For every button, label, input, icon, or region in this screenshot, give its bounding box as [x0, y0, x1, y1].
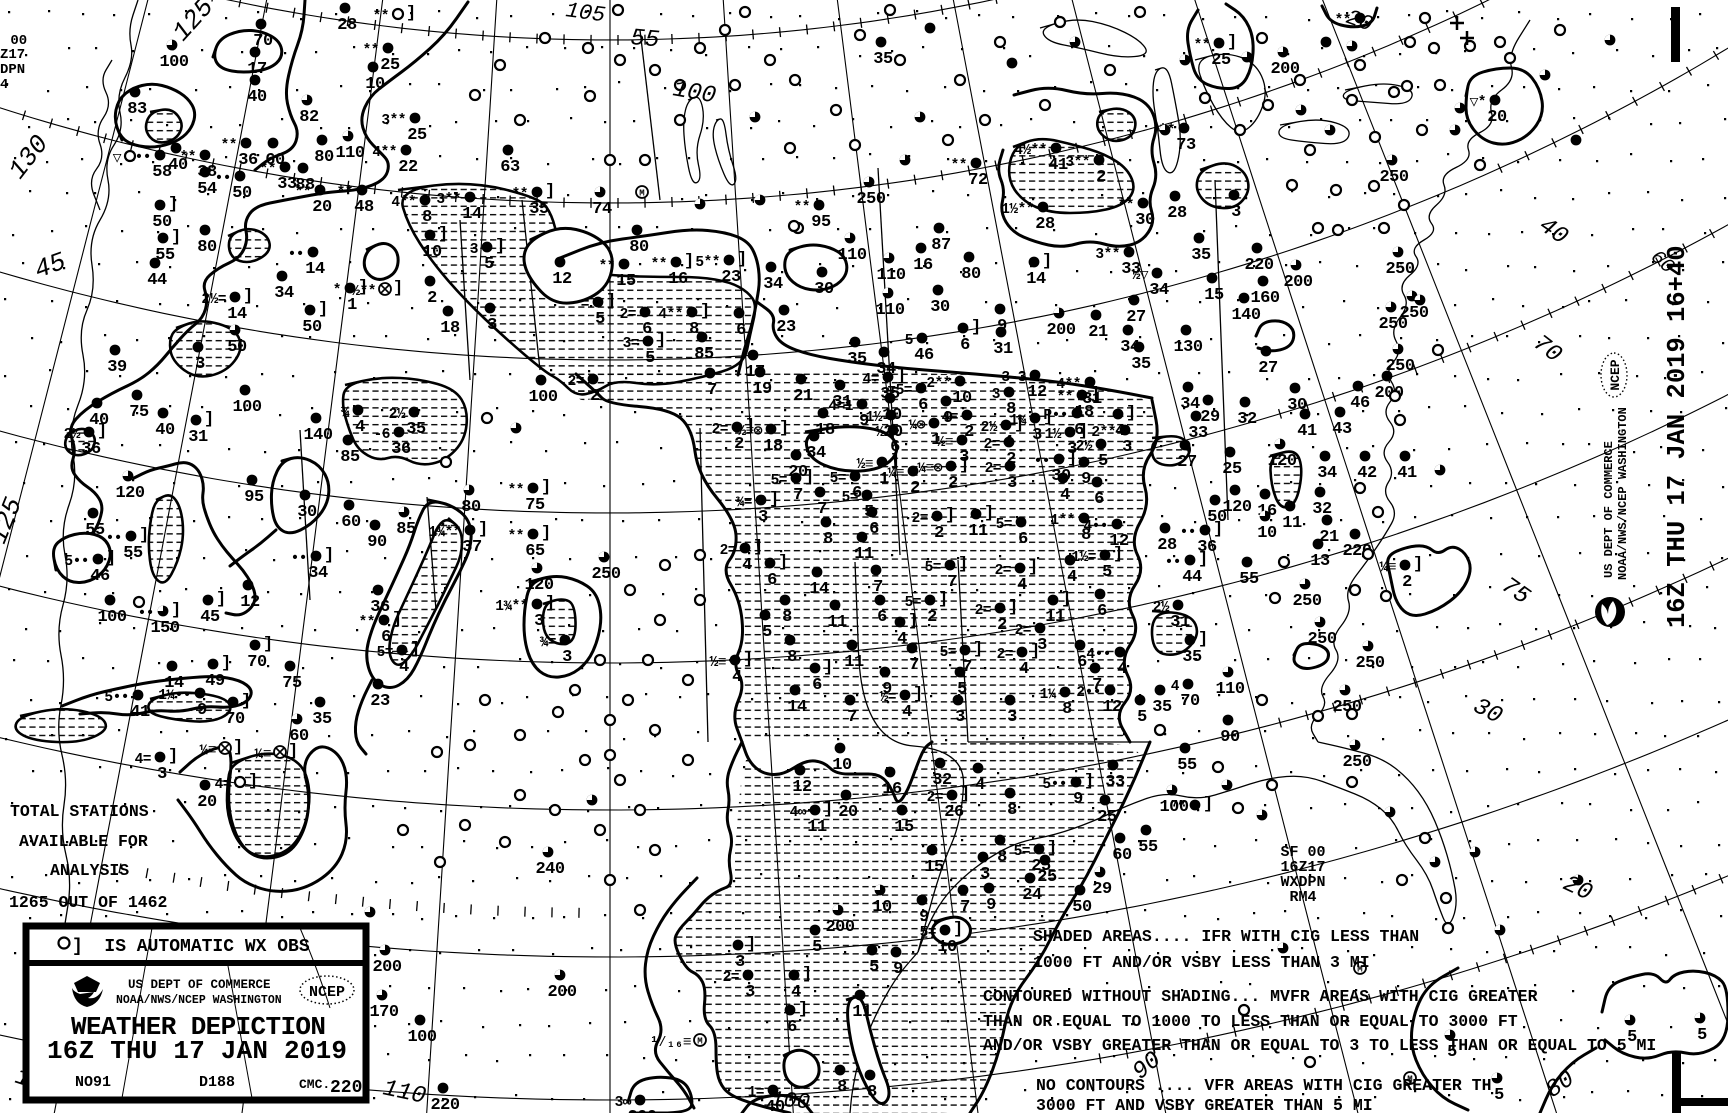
- svg-text:2: 2: [948, 474, 958, 493]
- svg-text:M: M: [639, 189, 644, 199]
- svg-text:1¾: 1¾: [1010, 413, 1027, 429]
- svg-text:6: 6: [1094, 490, 1104, 509]
- svg-text:35: 35: [1182, 648, 1202, 667]
- svg-text:]: ]: [393, 279, 403, 298]
- svg-text:55: 55: [123, 544, 143, 563]
- svg-text:6: 6: [877, 608, 887, 627]
- svg-text:]: ]: [743, 650, 753, 669]
- svg-text:]: ]: [1113, 545, 1123, 564]
- svg-text:3-3: 3-3: [1001, 370, 1026, 386]
- svg-text:1000 FT AND/OR VSBY LESS THAN: 1000 FT AND/OR VSBY LESS THAN 3 MI: [1033, 953, 1370, 972]
- svg-text:3∞: 3∞: [615, 1095, 632, 1111]
- svg-text:]: ]: [746, 935, 756, 954]
- svg-text:]: ]: [945, 506, 955, 525]
- svg-text:AVAILABLE FOR: AVAILABLE FOR: [19, 832, 148, 851]
- svg-text:5: 5: [1098, 452, 1108, 471]
- svg-text:41: 41: [130, 703, 150, 722]
- svg-text:D188: D188: [199, 1074, 235, 1091]
- svg-text:2=: 2=: [975, 603, 991, 619]
- svg-text:**: **: [508, 483, 524, 499]
- svg-text:=: =: [581, 297, 589, 313]
- svg-text:170: 170: [369, 1003, 398, 1022]
- svg-text:**: **: [295, 185, 311, 201]
- svg-text:]: ]: [798, 1000, 808, 1019]
- svg-text:]: ]: [804, 468, 814, 487]
- svg-text:5: 5: [595, 310, 605, 329]
- svg-text:½≡: ½≡: [857, 457, 873, 473]
- svg-text:]: ]: [1028, 558, 1038, 577]
- svg-text:9: 9: [197, 701, 207, 720]
- svg-text:P••: P••: [1043, 408, 1068, 424]
- svg-text:250: 250: [1385, 260, 1414, 279]
- svg-text:110: 110: [335, 144, 364, 163]
- svg-text:2½: 2½: [981, 420, 998, 436]
- svg-text:3: 3: [980, 865, 990, 884]
- svg-text:¾=: ¾=: [540, 635, 556, 651]
- svg-text:5=: 5=: [925, 560, 941, 576]
- svg-text:THAN OR EQUAL TO 1000 TO LESS: THAN OR EQUAL TO 1000 TO LESS THAN OR EQ…: [983, 1012, 1518, 1031]
- svg-text:20: 20: [312, 198, 332, 217]
- svg-text:3: 3: [1122, 438, 1132, 457]
- svg-text:5=: 5=: [1014, 844, 1030, 860]
- svg-text:]: ]: [1008, 598, 1018, 617]
- svg-text:21: 21: [793, 387, 813, 406]
- svg-text:34: 34: [308, 564, 328, 583]
- svg-text:80: 80: [314, 148, 334, 167]
- svg-text:1¼: 1¼: [1040, 687, 1057, 703]
- svg-text:¼≡: ¼≡: [1380, 560, 1396, 576]
- svg-text:32: 32: [932, 771, 952, 790]
- svg-text:30: 30: [297, 503, 317, 522]
- svg-text:ANALYSIS: ANALYSIS: [50, 861, 129, 880]
- svg-text:]: ]: [960, 785, 970, 804]
- svg-text:43: 43: [1332, 420, 1352, 439]
- svg-text:41: 41: [1397, 464, 1417, 483]
- svg-text:4=: 4=: [135, 752, 151, 768]
- svg-text:½≡: ½≡: [937, 435, 953, 451]
- svg-text:70: 70: [1180, 692, 1200, 711]
- svg-text:9: 9: [1081, 470, 1091, 489]
- svg-text:55: 55: [629, 25, 660, 54]
- svg-text:6: 6: [767, 571, 777, 590]
- svg-text:2=: 2=: [568, 374, 584, 390]
- svg-text:]: ]: [684, 252, 694, 271]
- svg-text:35: 35: [406, 420, 426, 439]
- svg-text:US DEPT OF COMMERCE: US DEPT OF COMMERCE: [1602, 441, 1616, 578]
- svg-text:3: 3: [1231, 203, 1241, 222]
- svg-text:2=: 2=: [984, 437, 1000, 453]
- svg-text:]: ]: [1413, 555, 1423, 574]
- svg-text:]: ]: [106, 549, 116, 568]
- svg-text:40: 40: [247, 88, 267, 107]
- svg-text:4**: 4**: [391, 195, 416, 211]
- svg-text:75: 75: [129, 403, 149, 422]
- svg-text:150: 150: [150, 619, 179, 638]
- svg-text:25: 25: [1222, 460, 1242, 479]
- svg-text:250: 250: [1378, 315, 1407, 334]
- svg-text:6: 6: [787, 1018, 797, 1037]
- svg-text:4••: 4••: [1083, 519, 1108, 535]
- svg-text:10: 10: [832, 756, 852, 775]
- svg-text:NO CONTOURS .... VFR AREAS WIT: NO CONTOURS .... VFR AREAS WITH CIG GREA…: [1036, 1076, 1491, 1095]
- svg-text:¼≡: ¼≡: [255, 747, 271, 763]
- svg-text:SHADED AREAS.... IFR WITH CIG: SHADED AREAS.... IFR WITH CIG LESS THAN: [1033, 927, 1419, 946]
- svg-text:28: 28: [337, 16, 357, 35]
- svg-text:11: 11: [827, 613, 847, 632]
- svg-text:60: 60: [341, 513, 361, 532]
- svg-text:250: 250: [591, 565, 620, 584]
- svg-text:]: ]: [890, 452, 900, 471]
- svg-text:10: 10: [937, 938, 957, 957]
- svg-text:28: 28: [1167, 204, 1187, 223]
- svg-text:5: 5: [905, 333, 913, 349]
- svg-text:4: 4: [1060, 486, 1070, 505]
- svg-text:4: 4: [732, 668, 742, 687]
- svg-text:85: 85: [396, 520, 416, 539]
- svg-text:40: 40: [155, 421, 175, 440]
- svg-text:1265 OUT OF 1462: 1265 OUT OF 1462: [9, 893, 167, 912]
- svg-text:]: ]: [908, 612, 918, 631]
- svg-text:9: 9: [882, 680, 892, 699]
- svg-text:]: ]: [221, 654, 231, 673]
- svg-text:80: 80: [961, 265, 981, 284]
- svg-text:29: 29: [1092, 880, 1112, 899]
- svg-text:200: 200: [825, 918, 854, 937]
- svg-text:]: ]: [541, 478, 551, 497]
- svg-text:3: 3: [992, 387, 1000, 403]
- svg-text:35: 35: [529, 200, 549, 219]
- svg-text:12: 12: [1102, 698, 1122, 717]
- svg-text:**: **: [363, 43, 379, 59]
- svg-text:4=1: 4=1: [828, 399, 853, 415]
- svg-text:]: ]: [318, 300, 328, 319]
- svg-text:20: 20: [1487, 108, 1507, 127]
- svg-text:]: ]: [1213, 520, 1223, 539]
- svg-text:**: **: [373, 9, 389, 25]
- svg-text:]: ]: [1198, 630, 1208, 649]
- svg-text:9: 9: [986, 896, 996, 915]
- svg-text:]: ]: [1042, 252, 1052, 271]
- svg-text:••: ••: [1180, 525, 1196, 541]
- svg-text:11: 11: [852, 1003, 872, 1022]
- svg-text:23: 23: [370, 692, 390, 711]
- svg-text:70: 70: [247, 653, 267, 672]
- svg-text:2½: 2½: [1153, 600, 1170, 616]
- svg-text:23: 23: [721, 268, 741, 287]
- svg-text:39: 39: [107, 358, 127, 377]
- svg-text:3: 3: [487, 316, 497, 335]
- svg-text:130: 130: [1173, 338, 1202, 357]
- svg-text:32: 32: [1237, 410, 1257, 429]
- svg-text:▽*: ▽*: [1470, 95, 1486, 111]
- svg-text:••: ••: [1034, 454, 1050, 470]
- svg-text:]: ]: [139, 526, 149, 545]
- svg-text:5=: 5=: [996, 517, 1012, 533]
- svg-text:¼⊗: ¼⊗: [909, 418, 926, 434]
- svg-text:CONTOURED WITHOUT SHADING... M: CONTOURED WITHOUT SHADING... MVFR AREAS …: [983, 987, 1538, 1006]
- svg-text:22: 22: [398, 158, 418, 177]
- svg-text:]: ]: [1090, 385, 1100, 404]
- svg-text:]: ]: [958, 555, 968, 574]
- svg-text:11: 11: [1045, 608, 1065, 627]
- svg-text:34: 34: [1149, 281, 1169, 300]
- svg-text:30: 30: [1135, 211, 1155, 230]
- svg-text:200: 200: [547, 983, 576, 1002]
- svg-text:33: 33: [1105, 773, 1125, 792]
- svg-text:100: 100: [407, 1028, 436, 1047]
- svg-text:7: 7: [873, 578, 883, 597]
- svg-text:]: ]: [802, 965, 812, 984]
- svg-text:1¾**: 1¾**: [428, 525, 461, 541]
- svg-text:NO91: NO91: [75, 1074, 111, 1091]
- svg-text:2=: 2=: [620, 307, 636, 323]
- svg-text:2: 2: [910, 479, 920, 498]
- svg-text:15: 15: [894, 818, 914, 837]
- svg-text:27: 27: [1177, 453, 1197, 472]
- svg-text:50: 50: [232, 184, 252, 203]
- svg-text:60: 60: [1112, 846, 1132, 865]
- svg-text:3: 3: [1007, 708, 1017, 727]
- svg-text:••: ••: [1165, 555, 1181, 571]
- svg-text:8: 8: [837, 1078, 847, 1097]
- svg-text:100: 100: [232, 398, 261, 417]
- svg-text:2: 2: [590, 387, 600, 406]
- svg-text:**: **: [1118, 198, 1134, 214]
- svg-text:45: 45: [200, 608, 220, 627]
- svg-text:36: 36: [81, 440, 101, 459]
- svg-text:]: ]: [406, 4, 416, 23]
- svg-text:37: 37: [462, 538, 482, 557]
- svg-text:]: ]: [606, 292, 616, 311]
- svg-text:NOAA: NOAA: [79, 985, 95, 992]
- svg-text:14: 14: [1026, 270, 1046, 289]
- svg-text:4∞: 4∞: [790, 805, 807, 821]
- svg-text:55: 55: [1177, 756, 1197, 775]
- svg-text:6: 6: [1018, 530, 1028, 549]
- svg-text:75: 75: [525, 496, 545, 515]
- svg-text:5**: 5**: [695, 255, 720, 271]
- svg-text:]: ]: [1198, 550, 1208, 569]
- svg-text:¹⁄₁₆≡: ¹⁄₁₆≡: [650, 1035, 691, 1051]
- svg-text:240: 240: [535, 860, 564, 879]
- svg-text:5: 5: [645, 349, 655, 368]
- svg-text:]: ]: [959, 456, 969, 475]
- svg-text:]: ]: [913, 685, 923, 704]
- svg-text:5••: 5••: [104, 690, 129, 706]
- svg-text:DPN: DPN: [0, 62, 25, 78]
- svg-text:]: ]: [769, 490, 779, 509]
- svg-text:]: ]: [263, 635, 273, 654]
- svg-text:27: 27: [1258, 359, 1278, 378]
- svg-text:5=: 5=: [842, 490, 858, 506]
- svg-text:16Z THU 17 JAN 2019 16+40: 16Z THU 17 JAN 2019 16+40: [1663, 245, 1692, 628]
- svg-text:16: 16: [882, 780, 902, 799]
- svg-text:½▽: ½▽: [1132, 268, 1149, 284]
- svg-text:1½: 1½: [1045, 427, 1062, 443]
- svg-text:1¼••: 1¼••: [158, 688, 191, 704]
- svg-text:]: ]: [410, 640, 420, 659]
- svg-text:4: 4: [975, 776, 985, 795]
- svg-text:2**: 2**: [926, 376, 951, 392]
- svg-text:]: ]: [168, 747, 178, 766]
- svg-text:]: ]: [1061, 590, 1071, 609]
- svg-text:80: 80: [629, 238, 649, 257]
- svg-text:] IS AUTOMATIC WX OBS: ] IS AUTOMATIC WX OBS: [72, 937, 310, 957]
- svg-text:3: 3: [470, 242, 478, 258]
- svg-text:*: *: [333, 283, 341, 299]
- svg-text:33: 33: [1188, 424, 1208, 443]
- svg-text:27: 27: [1126, 308, 1146, 327]
- svg-text:••: ••: [291, 551, 307, 567]
- svg-text:]: ]: [495, 237, 505, 256]
- svg-text:26: 26: [944, 803, 964, 822]
- svg-text:••: ••: [288, 247, 304, 263]
- svg-text:250: 250: [856, 190, 885, 209]
- svg-text:4: 4: [1067, 568, 1077, 587]
- svg-text:23: 23: [776, 318, 796, 337]
- svg-text:250: 250: [1355, 654, 1384, 673]
- svg-text:2: 2: [934, 524, 944, 543]
- svg-text:12: 12: [1027, 383, 1047, 402]
- svg-text:8: 8: [867, 1083, 877, 1102]
- svg-text:3: 3: [1037, 636, 1047, 655]
- svg-text:]: ]: [779, 419, 789, 438]
- svg-text:US DEPT OF COMMERCE: US DEPT OF COMMERCE: [128, 978, 271, 992]
- svg-text:100: 100: [528, 388, 557, 407]
- svg-text:44: 44: [147, 271, 167, 290]
- svg-text:4: 4: [1017, 576, 1027, 595]
- svg-text:6: 6: [960, 336, 970, 355]
- svg-text:7: 7: [1092, 676, 1102, 695]
- svg-text:6: 6: [869, 520, 879, 539]
- svg-text:4: 4: [1019, 660, 1029, 679]
- svg-text:80: 80: [461, 498, 481, 517]
- svg-text:NCEP: NCEP: [1608, 359, 1623, 390]
- svg-text:200: 200: [1283, 273, 1312, 292]
- svg-text:2: 2: [427, 289, 437, 308]
- svg-text:14: 14: [305, 260, 325, 279]
- svg-text:25: 25: [1211, 51, 1231, 70]
- svg-text:5: 5: [484, 255, 494, 274]
- svg-text:12: 12: [552, 270, 572, 289]
- svg-text:CMC.: CMC.: [299, 1077, 330, 1092]
- svg-text:18: 18: [763, 437, 783, 456]
- svg-text:]: ]: [545, 594, 555, 613]
- svg-text:16: 16: [668, 270, 688, 289]
- svg-text:7: 7: [707, 381, 717, 400]
- svg-text:44: 44: [1182, 568, 1202, 587]
- svg-text:4••: 4••: [1086, 647, 1111, 663]
- svg-text:220: 220: [430, 1096, 459, 1113]
- svg-text:]: ]: [1126, 404, 1136, 423]
- svg-text:31: 31: [1170, 613, 1190, 632]
- svg-text:100: 100: [769, 1087, 811, 1113]
- svg-text:4: 4: [1117, 660, 1127, 679]
- svg-text:**: **: [180, 150, 196, 166]
- svg-text:3: 3: [1032, 426, 1042, 445]
- svg-text:7: 7: [909, 656, 919, 675]
- svg-text:]: ]: [171, 601, 181, 620]
- svg-text:]: ]: [478, 520, 488, 539]
- svg-text:120: 120: [524, 576, 553, 595]
- svg-text:120: 120: [115, 484, 144, 503]
- svg-text:AND/OR VSBY GREATER THAN OR EQ: AND/OR VSBY GREATER THAN OR EQUAL TO 3 T…: [983, 1036, 1656, 1055]
- svg-text:55: 55: [1138, 838, 1158, 857]
- svg-text:**: **: [1194, 38, 1210, 54]
- svg-text:1: 1: [879, 470, 889, 489]
- svg-text:-6: -6: [374, 427, 390, 443]
- svg-text:2½=: 2½=: [201, 292, 226, 308]
- svg-text:24: 24: [1022, 886, 1042, 905]
- svg-text:3: 3: [534, 612, 544, 631]
- svg-text:55: 55: [85, 521, 105, 540]
- svg-text:4: 4: [399, 658, 409, 677]
- svg-text:]: ]: [753, 538, 763, 557]
- svg-text:2=: 2=: [720, 543, 736, 559]
- svg-text:2: 2: [927, 608, 937, 627]
- svg-text:]: ]: [700, 302, 710, 321]
- svg-text:4**: 4**: [658, 307, 683, 323]
- svg-text:82: 82: [299, 108, 319, 127]
- svg-text:]: ]: [656, 331, 666, 350]
- svg-text:36: 36: [391, 440, 411, 459]
- svg-text:Z17: Z17: [0, 47, 25, 63]
- svg-text:220: 220: [1244, 256, 1273, 275]
- svg-text:35: 35: [847, 350, 867, 369]
- svg-text:200: 200: [372, 958, 401, 977]
- svg-text:]: ]: [288, 742, 298, 761]
- svg-text:½≡⊗: ½≡⊗: [737, 424, 762, 440]
- svg-text:19: 19: [752, 380, 772, 399]
- svg-text:41: 41: [1297, 422, 1317, 441]
- svg-text:250: 250: [1342, 753, 1371, 772]
- svg-text:4: 4: [897, 630, 907, 649]
- svg-text:]: ]: [737, 250, 747, 269]
- svg-text:5=: 5=: [771, 473, 787, 489]
- svg-text:200: 200: [627, 1108, 656, 1113]
- svg-text:11: 11: [844, 653, 864, 672]
- svg-text:2=: 2=: [995, 563, 1011, 579]
- svg-text:250: 250: [1307, 630, 1336, 649]
- svg-text:6: 6: [736, 321, 746, 340]
- svg-text:8: 8: [997, 848, 1007, 867]
- svg-text:140: 140: [1231, 306, 1260, 325]
- svg-text:**: **: [599, 259, 615, 275]
- svg-text:31: 31: [993, 340, 1013, 359]
- svg-text:220: 220: [330, 1078, 362, 1098]
- svg-text:••: ••: [215, 171, 231, 187]
- svg-text:14: 14: [462, 205, 482, 224]
- svg-text:21: 21: [1088, 323, 1108, 342]
- svg-text:3: 3: [562, 648, 572, 667]
- svg-text:4: 4: [355, 418, 365, 437]
- svg-text:36: 36: [238, 151, 258, 170]
- svg-text:7: 7: [847, 708, 857, 727]
- svg-text:10: 10: [422, 243, 442, 262]
- svg-text:3: 3: [955, 708, 965, 727]
- svg-text:90: 90: [367, 533, 387, 552]
- svg-text:110: 110: [837, 246, 866, 265]
- svg-text:7: 7: [960, 898, 970, 917]
- svg-text:48: 48: [354, 198, 374, 217]
- svg-text:35: 35: [312, 710, 332, 729]
- svg-text:½**: ½**: [351, 284, 376, 300]
- svg-text:3: 3: [745, 983, 755, 1002]
- svg-text:5: 5: [1102, 563, 1112, 582]
- svg-text:]: ]: [953, 920, 963, 939]
- svg-text:]: ]: [938, 590, 948, 609]
- svg-text:2=: 2=: [1015, 623, 1031, 639]
